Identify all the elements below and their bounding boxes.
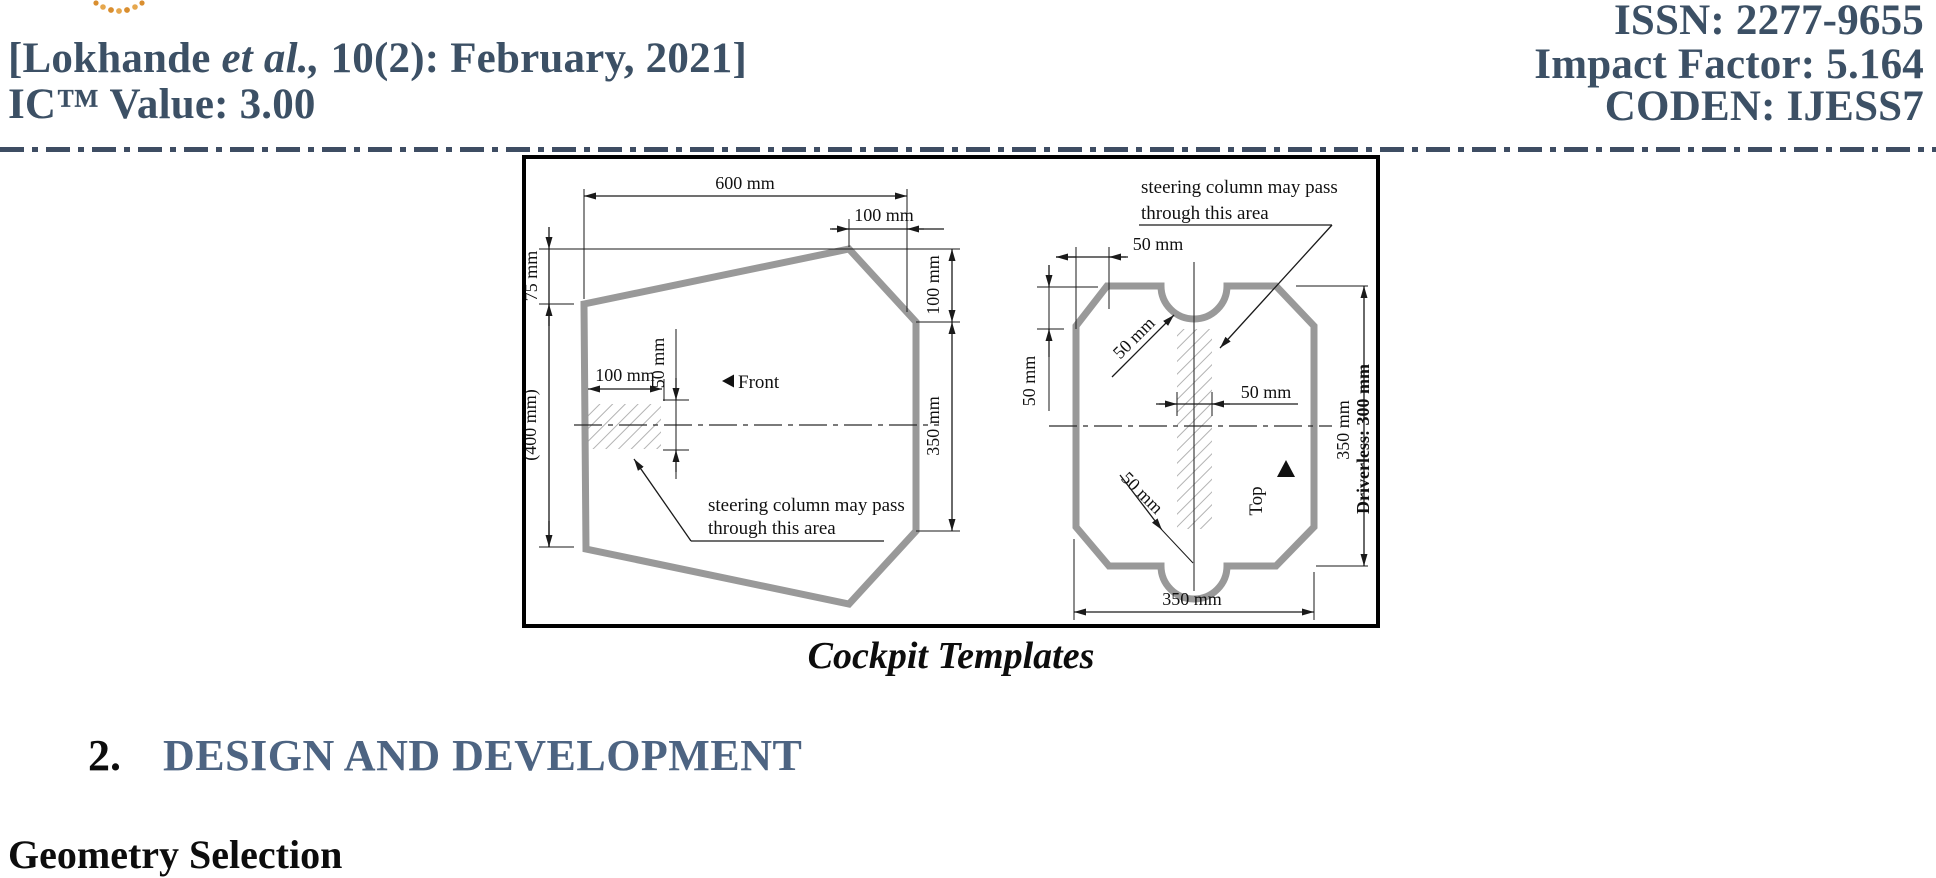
dim-50-hatch: 50 mm: [648, 338, 668, 389]
steering-column-hatch-left: [584, 404, 661, 449]
citation-line: [Lokhande et al., 10(2): February, 2021]: [8, 34, 747, 83]
citation-prefix: [Lokhande: [8, 35, 222, 82]
note-left-line1: steering column may pass: [708, 495, 905, 516]
dim-50-center: 50 mm: [1241, 382, 1292, 402]
top-template: steering column may pass through this ar…: [1019, 177, 1373, 620]
dash-dot-divider: [0, 147, 1936, 152]
subsection-title: Geometry Selection: [8, 831, 342, 878]
dim-75: 75 mm: [526, 251, 541, 302]
note-left-line2: through this area: [708, 518, 836, 539]
dim-600: 600 mm: [715, 173, 775, 193]
dim-400: (400 mm): [526, 389, 541, 461]
section-number: 2.: [88, 730, 121, 781]
figure-caption: Cockpit Templates: [522, 634, 1380, 678]
note-right-line2: through this area: [1141, 203, 1269, 224]
dim-100-top: 100 mm: [854, 205, 914, 225]
top-label: Top: [1246, 486, 1267, 515]
dim-350-right-left-template: 350 mm: [923, 396, 943, 456]
side-template: 600 mm 100 mm 75 mm (400 mm) 100 mm 50 m…: [526, 173, 960, 604]
cockpit-templates-figure: 600 mm 100 mm 75 mm (400 mm) 100 mm 50 m…: [522, 155, 1380, 628]
ic-value: IC™ Value: 3.00: [8, 80, 316, 129]
issn: ISSN: 2277-9655: [1614, 0, 1924, 45]
dim-350-right: 350 mm: [1333, 400, 1353, 460]
front-arrow-icon: [722, 375, 734, 388]
note-right-line1: steering column may pass: [1141, 177, 1338, 198]
dim-100-right: 100 mm: [923, 255, 943, 315]
citation-etal: et al.,: [222, 35, 320, 82]
citation-suffix: 10(2): February, 2021]: [320, 35, 747, 82]
technical-drawing: 600 mm 100 mm 75 mm (400 mm) 100 mm 50 m…: [526, 159, 1376, 624]
front-label: Front: [738, 372, 780, 393]
dim-100-hatch: 100 mm: [595, 365, 655, 385]
dim-50-left: 50 mm: [1019, 356, 1039, 407]
journal-logo-partial: [88, 0, 152, 16]
dim-50-notch-bottom: 50 mm: [1117, 468, 1167, 518]
section-title: DESIGN AND DEVELOPMENT: [163, 730, 802, 781]
driverless-label: Driverless: 300 mm: [1353, 364, 1373, 514]
top-arrow-icon: [1277, 460, 1295, 477]
coden: CODEN: IJESS7: [1605, 82, 1924, 131]
dim-50-top: 50 mm: [1133, 234, 1184, 254]
dim-350-bottom: 350 mm: [1162, 589, 1222, 609]
